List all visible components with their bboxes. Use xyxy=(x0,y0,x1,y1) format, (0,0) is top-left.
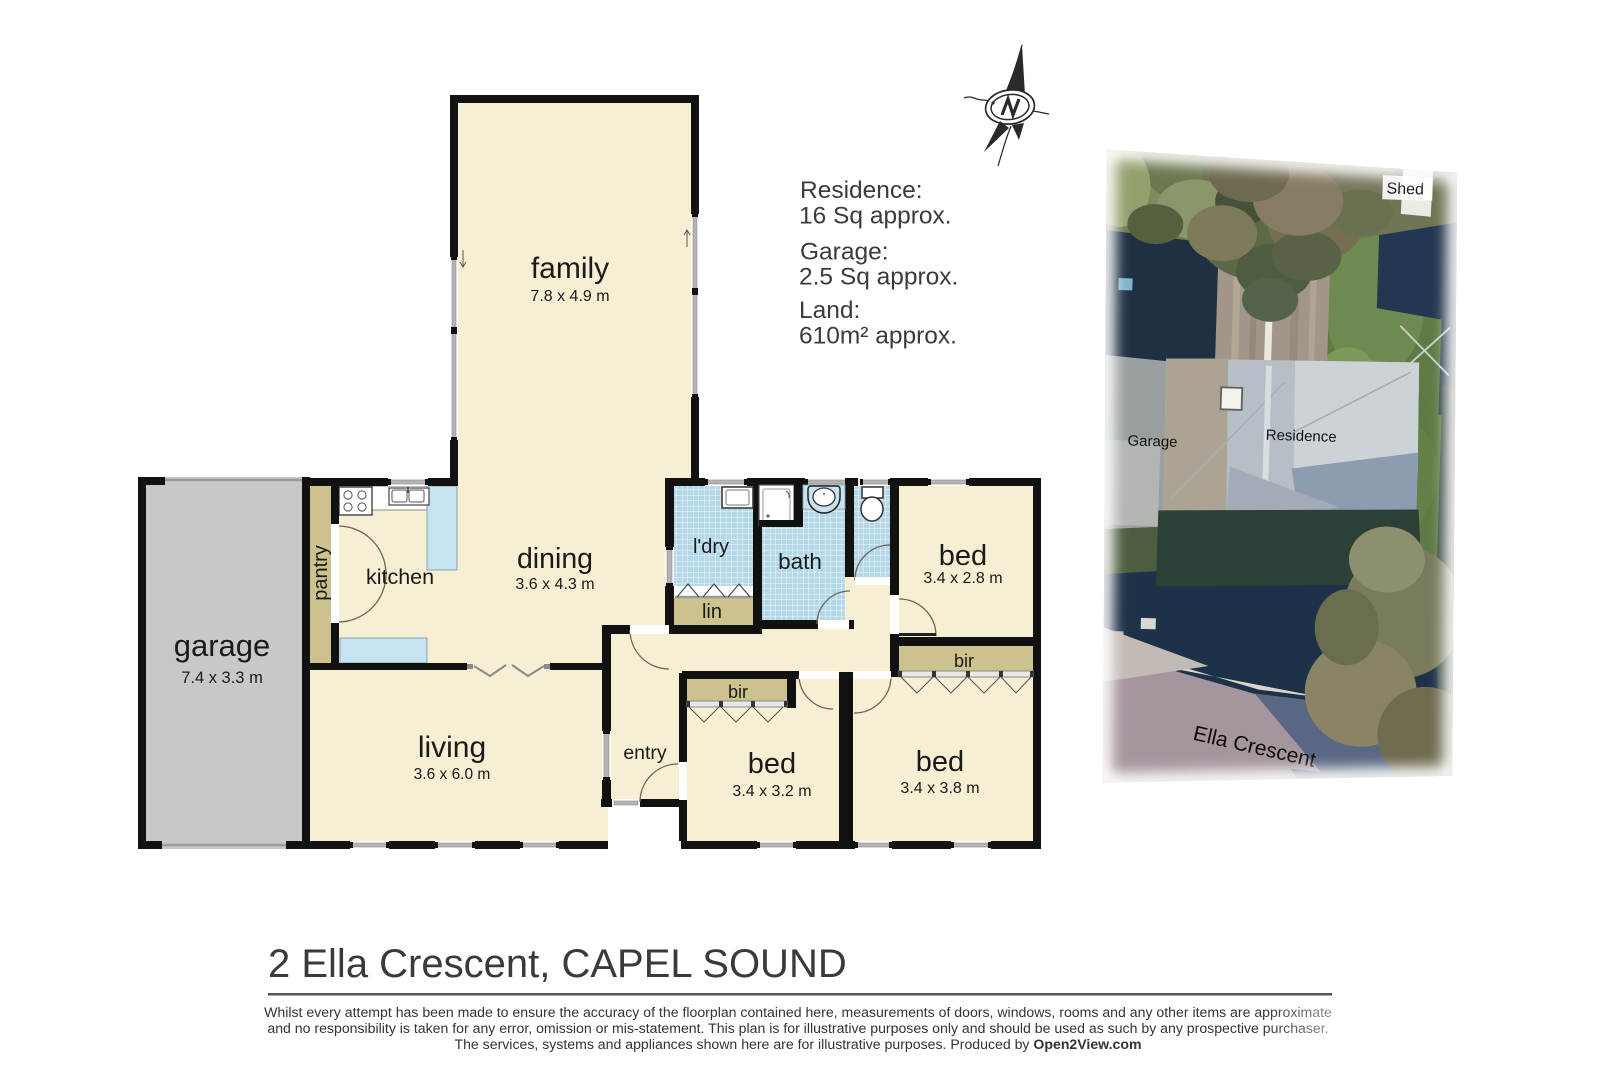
svg-text:Whilst every attempt has been: Whilst every attempt has been made to en… xyxy=(264,1004,1332,1020)
svg-text:living: living xyxy=(418,731,486,764)
svg-text:pantry: pantry xyxy=(310,545,332,601)
svg-text:bed: bed xyxy=(748,748,796,780)
svg-text:and no responsibility is taken: and no responsibility is taken for any e… xyxy=(267,1020,1328,1036)
svg-text:2.5 Sq approx.: 2.5 Sq approx. xyxy=(799,264,958,291)
svg-text:bed: bed xyxy=(939,540,987,572)
svg-text:bir: bir xyxy=(954,651,974,671)
svg-text:bed: bed xyxy=(916,746,964,778)
svg-text:kitchen: kitchen xyxy=(366,565,434,589)
svg-text:garage: garage xyxy=(174,628,271,663)
svg-text:bath: bath xyxy=(778,549,822,574)
svg-text:3.4 x 2.8 m: 3.4 x 2.8 m xyxy=(923,570,1002,587)
svg-text:Residence: Residence xyxy=(1266,427,1337,446)
svg-text:lin: lin xyxy=(702,601,722,623)
svg-text:Land:: Land: xyxy=(799,297,860,324)
svg-text:l'dry: l'dry xyxy=(693,536,729,558)
svg-text:Shed: Shed xyxy=(1386,180,1424,198)
svg-text:The services, systems and appl: The services, systems and appliances sho… xyxy=(454,1036,1141,1052)
svg-text:entry: entry xyxy=(623,742,667,764)
svg-text:3.6 x 6.0 m: 3.6 x 6.0 m xyxy=(414,766,491,783)
svg-text:2 Ella Crescent, CAPEL SOUND: 2 Ella Crescent, CAPEL SOUND xyxy=(268,942,847,986)
svg-text:610m² approx.: 610m² approx. xyxy=(799,323,957,350)
svg-text:Garage: Garage xyxy=(1127,432,1178,451)
svg-text:3.6 x 4.3 m: 3.6 x 4.3 m xyxy=(515,576,594,593)
svg-text:16 Sq approx.: 16 Sq approx. xyxy=(799,203,952,230)
svg-text:Garage:: Garage: xyxy=(800,239,889,266)
svg-text:7.4 x 3.3 m: 7.4 x 3.3 m xyxy=(181,669,263,687)
svg-text:dining: dining xyxy=(517,543,593,575)
svg-text:Residence:: Residence: xyxy=(800,177,923,204)
svg-text:bir: bir xyxy=(728,682,748,702)
svg-text:3.4 x 3.2 m: 3.4 x 3.2 m xyxy=(732,783,811,800)
svg-text:family: family xyxy=(531,252,609,285)
svg-text:7.8 x 4.9 m: 7.8 x 4.9 m xyxy=(530,288,609,305)
svg-text:3.4 x 3.8 m: 3.4 x 3.8 m xyxy=(900,780,979,797)
